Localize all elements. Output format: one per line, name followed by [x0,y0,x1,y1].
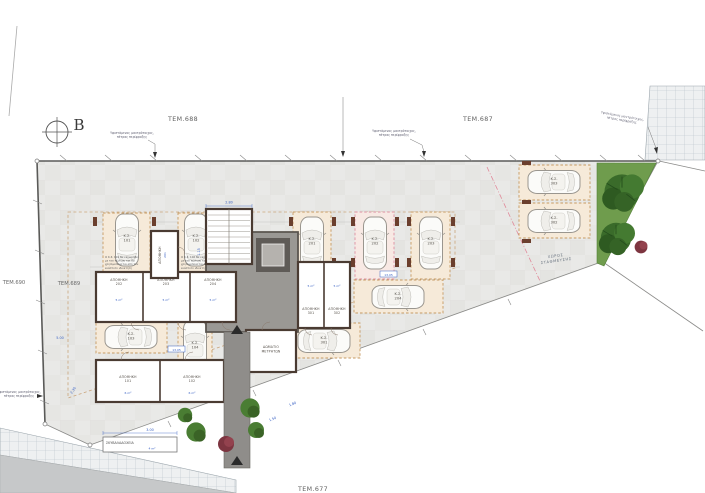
fence-note-3-group: Υφιστάμενος μαντρότοιχος,πέτρας περίφραξ… [600,110,644,125]
storage-201-label: ΑΠΟΘΗΚΗ [158,246,162,264]
parcel-687: ΤΕΜ.687 [462,116,493,123]
storage-203-area: 5 m² [163,298,171,302]
bins-dim: 3.00 [146,428,154,432]
fence-note-1-leader [148,140,155,153]
stall-label-101: Κ.Σ.101 [123,234,130,242]
offsite-line [9,26,17,116]
storage-301-area: 5 m² [308,284,316,288]
dim-5-00: 5.00 [56,336,64,340]
neighbour-boundary-line2 [603,262,703,331]
leader-arrow [37,394,43,398]
stall-label-102: Κ.Σ.102 [192,234,199,242]
dim-2-80: 2.80 [225,201,233,205]
dim-1-50: 1.50 [268,416,277,423]
site-plan-canvas: Κ.Σ.101 Κ.Σ.102 Κ.Σ.201 Κ.Σ.202 Κ.Σ.203 … [0,0,705,493]
fence-note-2-leader [410,139,424,152]
stall-label-301: Κ.Σ.301 [320,336,327,344]
parcel-689: ΤΕΜ.689 [57,281,80,287]
stall-label-203: Κ.Σ.203 [427,237,435,245]
fence-note-2: Υφιστάμενος μαντρότοιχος,πέτρας περίφραξ… [372,129,416,137]
storage-204-area: 5 m² [210,298,218,302]
bush [248,422,264,438]
elevator-car [262,244,284,266]
storage-302-area: 5 m² [334,284,342,288]
storage-202-area: 5 m² [116,298,124,302]
stall-label-202: Κ.Σ.202 [371,237,378,245]
stall-label-303: Κ.Σ.303 [550,177,558,185]
bush [186,422,205,441]
bush [240,398,259,417]
bush [178,408,192,422]
storage-102-area: 6 m² [189,391,197,395]
compass: Β [42,116,85,147]
compass-cross [42,117,72,147]
leader-arrow [153,152,157,158]
storage-101-area: 6 m² [125,391,133,395]
stall-label-204: Κ.Σ.204 [394,292,402,300]
dim-1-80: 1.80 [288,401,297,408]
level-value-2: 13.05 [384,273,393,277]
dim-1-15: 1.15 [197,248,201,256]
meter-room-label: ΔΩΜΑΤΙΟΜΕΤΡΗΤΩΝ [262,345,281,353]
parcel-677: ΤΕΜ.677 [297,486,328,493]
stall-label-302: Κ.Σ.302 [550,216,557,224]
bins-area: 4 m² [149,447,157,451]
fence-note-1: Υφιστάμενος μαντρότοιχος,πέτρας περίφραξ… [110,131,154,139]
red-bush [635,241,648,254]
level-value-1: 13.05 [172,348,181,352]
fence-note-4: Υφιστάμενος μαντρότοιχος,πέτρας περίφραξ… [0,390,41,398]
bins-label: ΣΚΥΒΑΛΑΔΟΧΕΙΑ [106,441,134,445]
storage-201-num: 201 [163,252,167,258]
red-bush [218,436,234,452]
parcel-690: ΤΕΜ.690 [2,280,25,286]
stall-label-201: Κ.Σ.201 [308,237,315,245]
leader-arrow [341,151,345,157]
stall-label-104: Κ.Σ.104 [191,341,199,349]
north-label: Β [73,116,84,134]
neighbour-paving [645,86,705,160]
leader-arrow [422,151,426,157]
stall-label-103: Κ.Σ.103 [127,332,135,340]
parcel-688: ΤΕΜ.688 [167,116,198,123]
fence-note-3: Υφιστάμενος μαντρότοιχος,πέτρας περίφραξ… [600,110,644,125]
neighbour-boundary-line [659,161,705,171]
